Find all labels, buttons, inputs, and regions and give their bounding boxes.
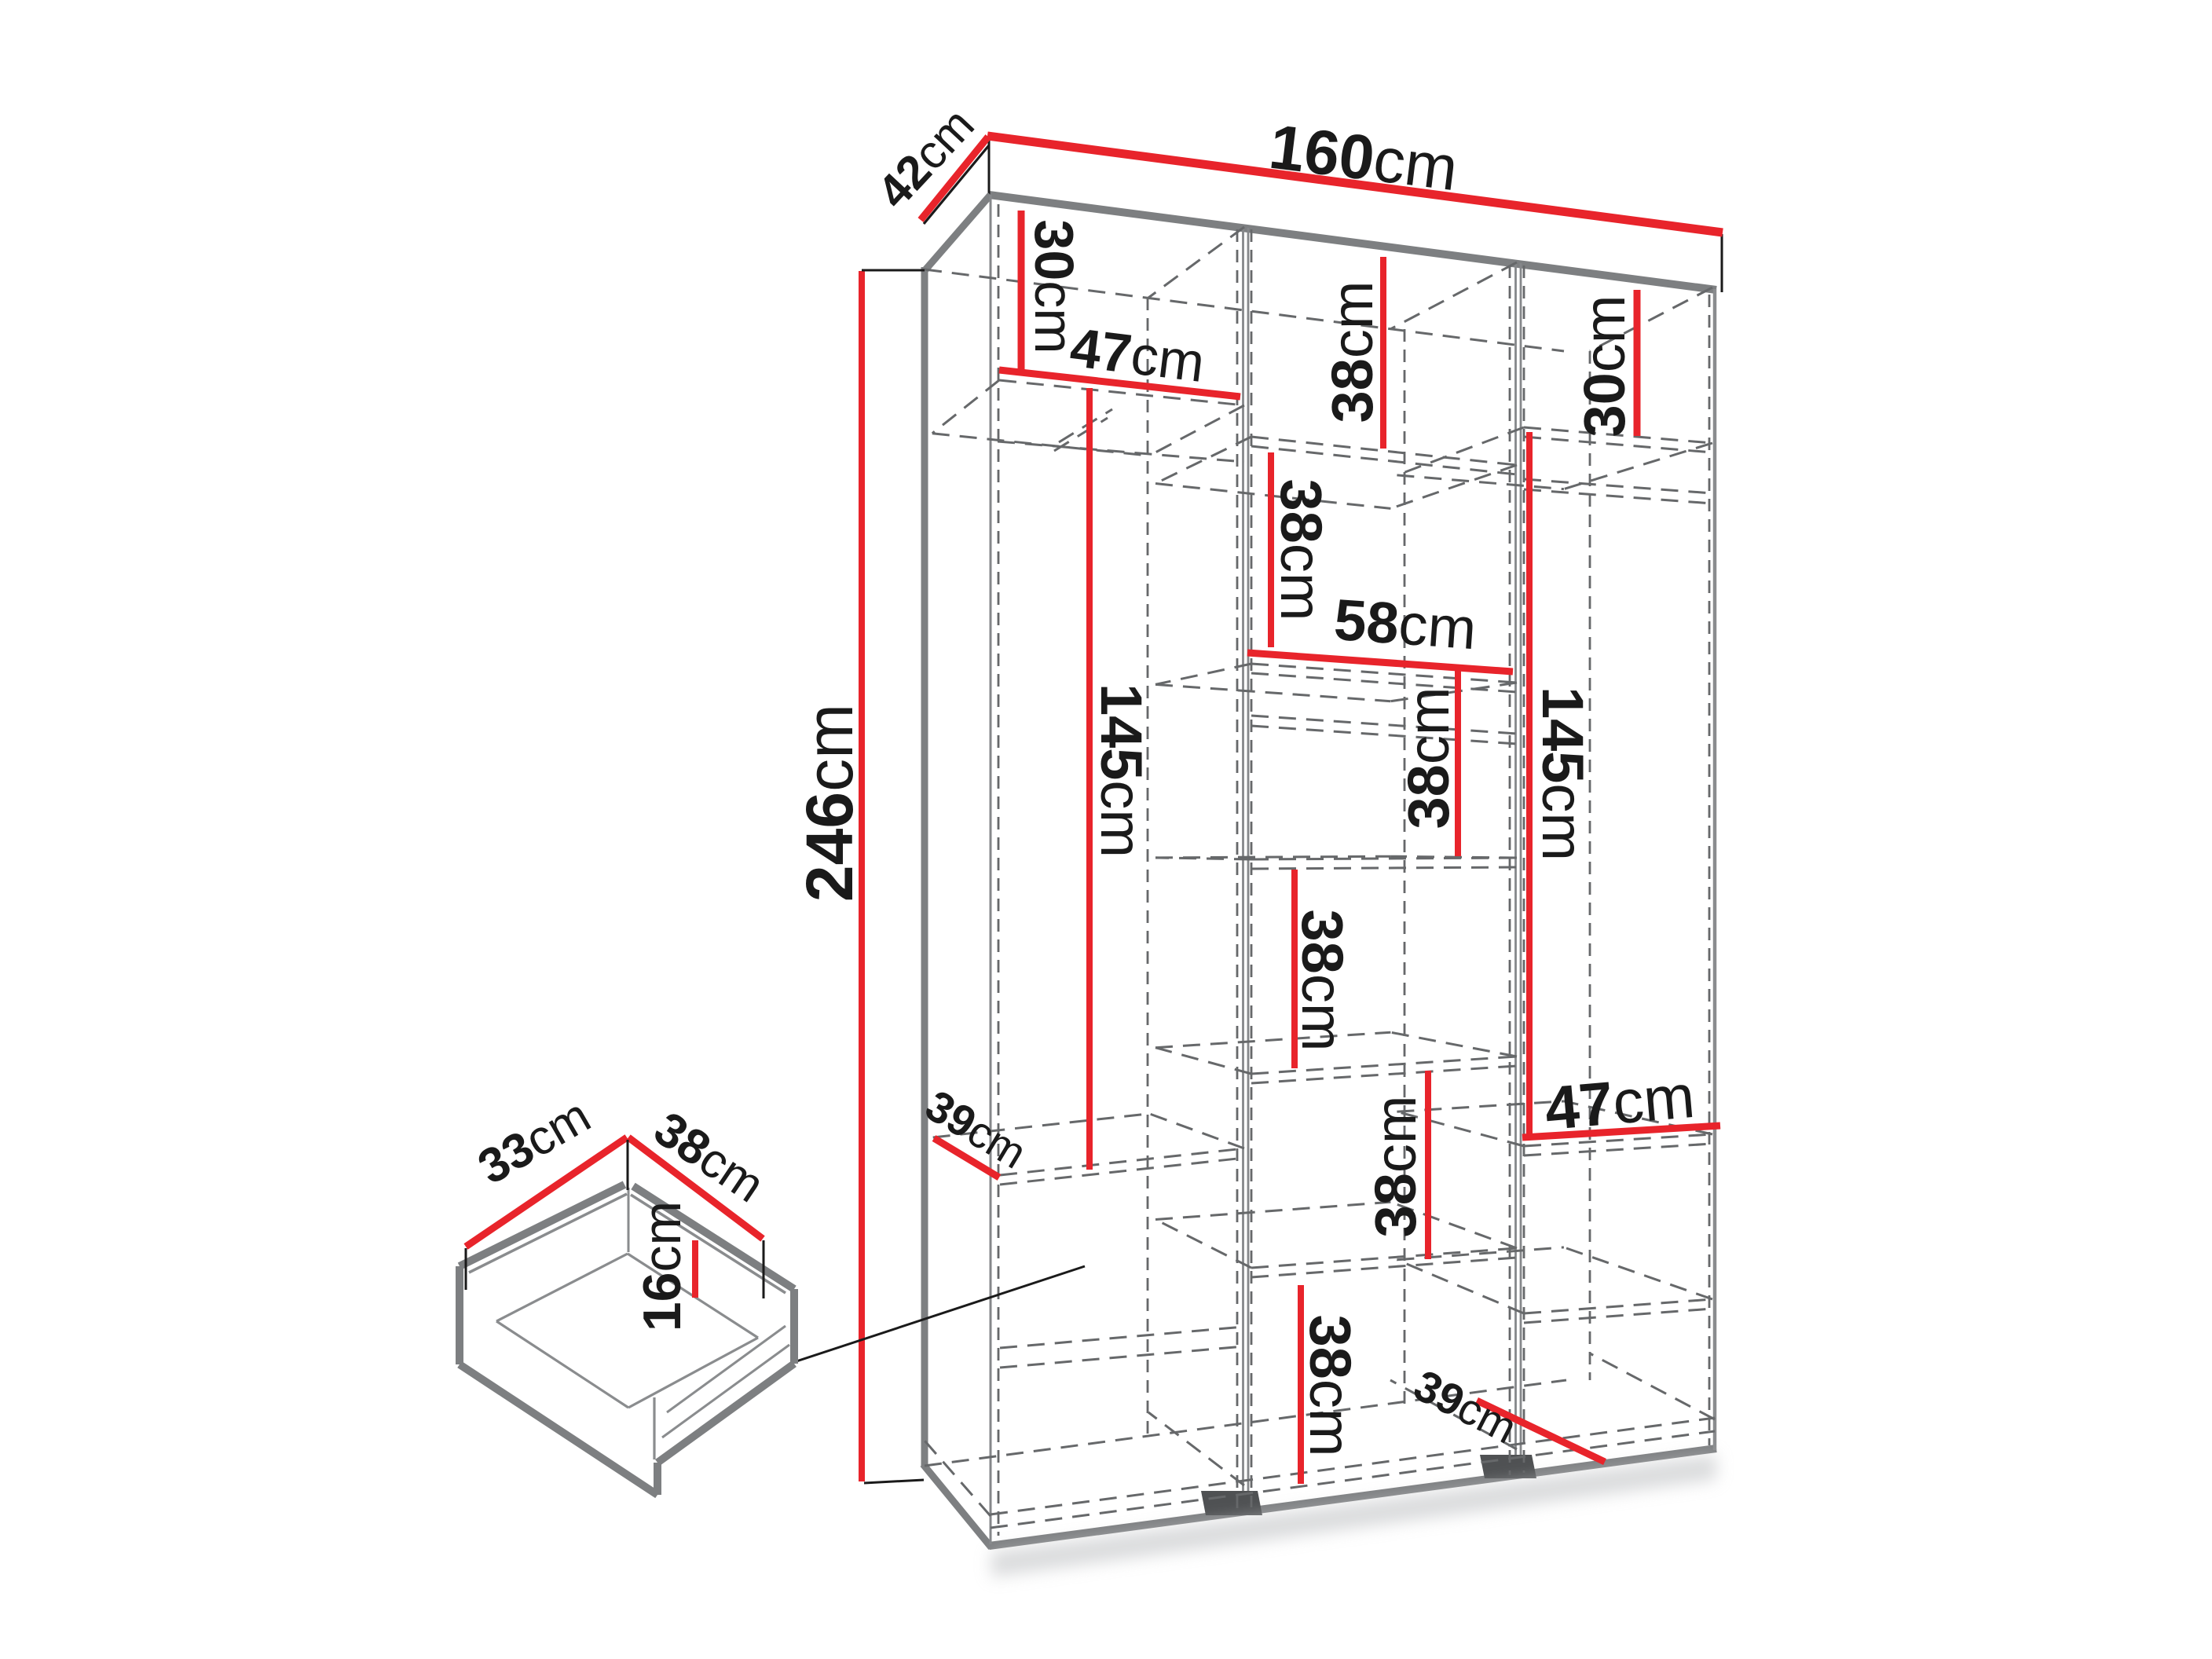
svg-text:58cm: 58cm (1332, 586, 1478, 661)
svg-text:38cm: 38cm (1320, 281, 1385, 423)
svg-text:38cm: 38cm (1298, 1315, 1364, 1457)
svg-text:30cm: 30cm (1572, 295, 1637, 438)
svg-text:16cm: 16cm (632, 1201, 692, 1331)
svg-text:38cm: 38cm (1396, 687, 1461, 829)
svg-text:145cm: 145cm (1531, 687, 1596, 861)
svg-text:38cm: 38cm (1363, 1096, 1428, 1238)
svg-text:38cm: 38cm (1269, 479, 1335, 621)
svg-text:145cm: 145cm (1090, 683, 1155, 858)
svg-text:47cm: 47cm (1542, 1061, 1697, 1143)
svg-text:246cm: 246cm (793, 704, 866, 902)
svg-text:38cm: 38cm (1291, 910, 1356, 1052)
